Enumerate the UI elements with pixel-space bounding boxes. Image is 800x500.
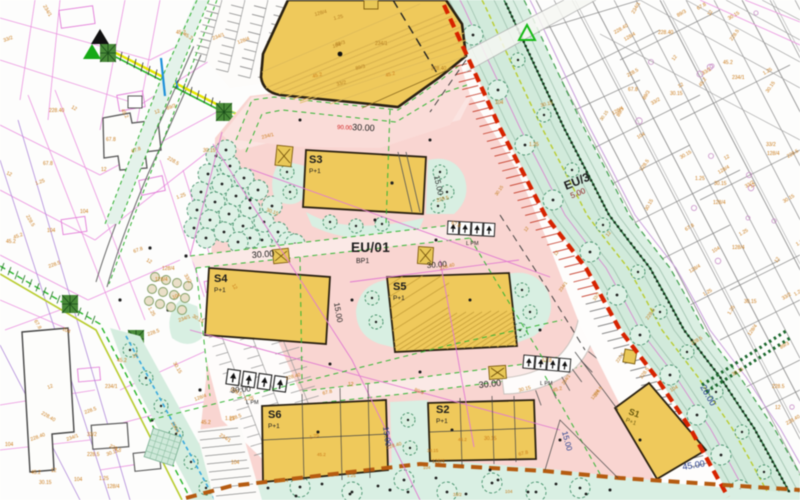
svg-text:30.15: 30.15 bbox=[744, 299, 757, 305]
svg-text:128/4: 128/4 bbox=[107, 484, 120, 490]
svg-text:30.15: 30.15 bbox=[39, 480, 52, 486]
svg-text:104: 104 bbox=[74, 477, 83, 483]
svg-text:67.8: 67.8 bbox=[106, 137, 116, 143]
svg-text:12: 12 bbox=[51, 468, 57, 474]
svg-text:128/4: 128/4 bbox=[277, 478, 289, 483]
svg-text:67.8: 67.8 bbox=[43, 161, 53, 167]
svg-text:L PM: L PM bbox=[466, 241, 479, 247]
svg-text:P+1: P+1 bbox=[436, 418, 448, 425]
svg-text:228.40: 228.40 bbox=[49, 108, 65, 114]
svg-text:1.25: 1.25 bbox=[244, 396, 254, 402]
svg-text:128/4: 128/4 bbox=[732, 245, 745, 251]
svg-text:30.15: 30.15 bbox=[670, 91, 683, 97]
svg-text:1.25: 1.25 bbox=[695, 176, 705, 182]
svg-text:128/4: 128/4 bbox=[155, 277, 168, 283]
svg-text:67.8: 67.8 bbox=[542, 358, 552, 364]
svg-text:128/4: 128/4 bbox=[162, 266, 175, 272]
svg-text:45.2: 45.2 bbox=[117, 358, 127, 364]
svg-text:33/2: 33/2 bbox=[87, 432, 97, 438]
svg-text:30.00: 30.00 bbox=[352, 122, 375, 133]
svg-text:228.5: 228.5 bbox=[772, 384, 785, 390]
svg-text:S3: S3 bbox=[309, 154, 322, 166]
svg-text:S5: S5 bbox=[393, 281, 406, 293]
svg-text:228.5: 228.5 bbox=[87, 452, 100, 458]
svg-text:S6: S6 bbox=[268, 409, 281, 421]
svg-text:30.15: 30.15 bbox=[427, 448, 439, 453]
svg-text:234/1: 234/1 bbox=[105, 384, 118, 390]
svg-text:128/4: 128/4 bbox=[767, 151, 780, 157]
svg-text:104: 104 bbox=[505, 489, 513, 494]
svg-text:12: 12 bbox=[348, 382, 354, 388]
svg-text:90.00: 90.00 bbox=[337, 125, 353, 132]
svg-text:45.2: 45.2 bbox=[317, 452, 326, 457]
svg-text:30.00: 30.00 bbox=[251, 248, 274, 260]
svg-text:S2: S2 bbox=[436, 404, 449, 416]
svg-text:12: 12 bbox=[101, 167, 107, 173]
svg-text:104: 104 bbox=[47, 228, 56, 234]
svg-text:45.2: 45.2 bbox=[458, 437, 467, 442]
svg-text:P+1: P+1 bbox=[393, 295, 405, 302]
svg-text:33/2: 33/2 bbox=[766, 142, 776, 148]
svg-text:45.2: 45.2 bbox=[31, 470, 41, 476]
svg-text:45.2: 45.2 bbox=[6, 239, 16, 245]
svg-text:128/4: 128/4 bbox=[713, 200, 726, 206]
svg-text:67.8: 67.8 bbox=[628, 87, 638, 93]
svg-text:128/4: 128/4 bbox=[432, 459, 445, 465]
svg-text:234/1: 234/1 bbox=[732, 75, 745, 81]
svg-text:BP1: BP1 bbox=[356, 258, 369, 265]
svg-text:1.25: 1.25 bbox=[529, 142, 539, 148]
svg-text:1.25: 1.25 bbox=[347, 473, 356, 478]
svg-text:1.25: 1.25 bbox=[225, 416, 235, 422]
svg-text:30.15: 30.15 bbox=[714, 181, 727, 187]
svg-text:30.15: 30.15 bbox=[484, 436, 497, 442]
svg-text:45.2: 45.2 bbox=[723, 60, 733, 66]
svg-text:228.40: 228.40 bbox=[658, 30, 674, 36]
svg-text:104: 104 bbox=[423, 465, 431, 470]
svg-text:104: 104 bbox=[231, 460, 240, 466]
svg-text:234/1: 234/1 bbox=[375, 41, 388, 47]
svg-text:104: 104 bbox=[5, 442, 14, 448]
svg-text:104: 104 bbox=[495, 100, 504, 106]
svg-text:104: 104 bbox=[80, 209, 89, 215]
svg-text:S4: S4 bbox=[214, 273, 228, 285]
svg-text:228.40: 228.40 bbox=[431, 66, 447, 72]
svg-text:P+1: P+1 bbox=[309, 168, 321, 175]
svg-text:P+1: P+1 bbox=[268, 423, 280, 430]
svg-text:L PM: L PM bbox=[540, 381, 553, 387]
svg-text:1.25: 1.25 bbox=[99, 476, 109, 482]
svg-text:12: 12 bbox=[775, 405, 781, 411]
svg-text:30.15: 30.15 bbox=[203, 148, 216, 154]
svg-text:EU/01: EU/01 bbox=[351, 240, 390, 255]
svg-text:P+1: P+1 bbox=[214, 287, 226, 294]
svg-text:33/2: 33/2 bbox=[453, 492, 462, 497]
svg-text:45.2: 45.2 bbox=[201, 420, 211, 426]
